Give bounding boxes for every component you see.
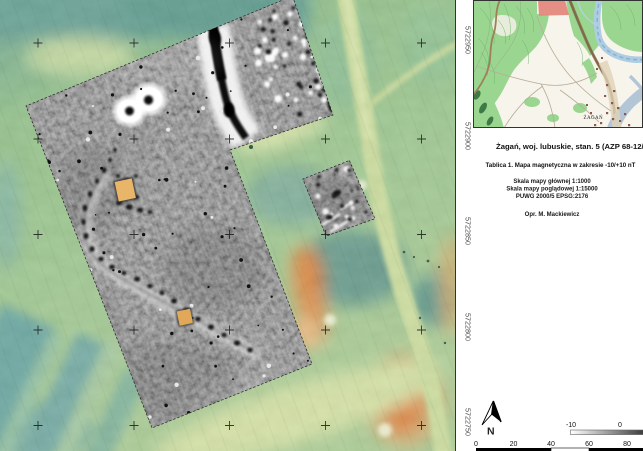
svg-text:Żagań, woj. lubuskie, stan. 5: Żagań, woj. lubuskie, stan. 5 (AZP 68-12… [496, 142, 643, 151]
svg-text:60: 60 [585, 441, 593, 448]
svg-text:0: 0 [474, 441, 478, 448]
svg-text:Skala mapy głównej 1:1000: Skala mapy głównej 1:1000 [513, 179, 591, 185]
svg-text:5722900: 5722900 [464, 122, 473, 150]
svg-text:-10: -10 [566, 422, 576, 429]
svg-text:40: 40 [547, 441, 555, 448]
svg-text:5722950: 5722950 [464, 26, 473, 54]
svg-text:80: 80 [623, 441, 631, 448]
svg-text:Opr. M. Mackiewicz: Opr. M. Mackiewicz [525, 212, 580, 218]
svg-text:Tablica 1. Mapa magnetyczna w: Tablica 1. Mapa magnetyczna w zakresie -… [486, 162, 636, 169]
svg-text:PUWG 2000/5 EPSG:2176: PUWG 2000/5 EPSG:2176 [516, 194, 589, 200]
svg-text:5722750: 5722750 [464, 408, 473, 436]
svg-text:20: 20 [510, 441, 518, 448]
svg-text:ŻAGAŃ: ŻAGAŃ [584, 115, 604, 121]
svg-text:0: 0 [618, 422, 622, 429]
svg-text:N: N [487, 426, 495, 438]
svg-text:5722850: 5722850 [464, 217, 473, 245]
svg-text:Skala mapy poglądowej 1:15000: Skala mapy poglądowej 1:15000 [506, 187, 598, 193]
svg-text:5722800: 5722800 [464, 313, 473, 341]
